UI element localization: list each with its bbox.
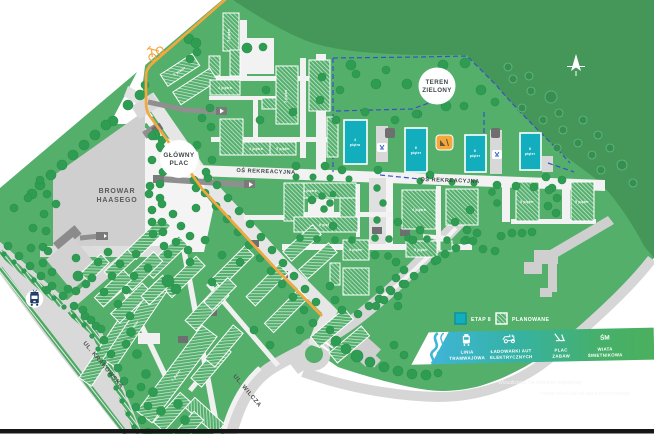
svg-text:ETAP 8: ETAP 8 xyxy=(471,317,491,323)
svg-text:ZABAW: ZABAW xyxy=(552,353,570,358)
svg-text:i może różnić się od stanu rze: i może różnić się od stanu rzeczywistego xyxy=(540,391,631,397)
svg-text:piętra: piętra xyxy=(350,143,360,147)
svg-text:ZIELONY: ZIELONY xyxy=(422,87,452,94)
svg-text:4 piętra: 4 piętra xyxy=(249,147,263,151)
svg-text:5 pięter: 5 pięter xyxy=(276,147,290,151)
svg-text:4 piętra: 4 piętra xyxy=(412,208,426,212)
svg-text:ŁADOWARKI AUT: ŁADOWARKI AUT xyxy=(491,348,532,354)
svg-text:LINIA: LINIA xyxy=(461,349,475,354)
svg-text:pięter: pięter xyxy=(411,151,422,155)
svg-text:PLAC: PLAC xyxy=(170,160,189,167)
svg-text:Wizualizacja ma charakter pogl: Wizualizacja ma charakter poglądowy xyxy=(498,380,582,386)
svg-text:ELEKTRYCZNYCH: ELEKTRYCZNYCH xyxy=(490,354,533,360)
svg-text:4 piętra: 4 piętra xyxy=(303,189,317,193)
svg-text:pięter: pięter xyxy=(470,154,481,158)
svg-text:BROWAR: BROWAR xyxy=(99,188,136,195)
svg-text:ŚM: ŚM xyxy=(600,333,610,342)
svg-text:PLAC: PLAC xyxy=(554,347,568,352)
svg-text:WIATA: WIATA xyxy=(597,346,613,351)
svg-text:TEREN: TEREN xyxy=(426,79,449,86)
svg-text:5 pięter: 5 pięter xyxy=(520,200,534,204)
svg-text:ŚMIETNIKOWA: ŚMIETNIKOWA xyxy=(588,352,623,358)
svg-text:6: 6 xyxy=(474,149,476,153)
svg-text:7 pięter: 7 pięter xyxy=(284,89,288,103)
svg-text:6: 6 xyxy=(415,146,417,150)
svg-text:7 pięter: 7 pięter xyxy=(227,28,231,42)
svg-text:TRAMWAJOWA: TRAMWAJOWA xyxy=(449,355,485,361)
svg-text:6 pięter: 6 pięter xyxy=(349,248,363,252)
svg-text:GŁÓWNY: GŁÓWNY xyxy=(163,150,194,159)
svg-text:4 piętra: 4 piętra xyxy=(218,86,232,90)
svg-text:PLANOWANE: PLANOWANE xyxy=(512,317,549,323)
svg-text:4: 4 xyxy=(354,138,356,142)
svg-text:5 pięter: 5 pięter xyxy=(414,248,428,252)
svg-text:HAASEGO: HAASEGO xyxy=(97,197,138,204)
svg-text:pięter: pięter xyxy=(525,152,536,156)
svg-text:6: 6 xyxy=(529,147,531,151)
svg-text:5 pięter: 5 pięter xyxy=(575,200,589,204)
